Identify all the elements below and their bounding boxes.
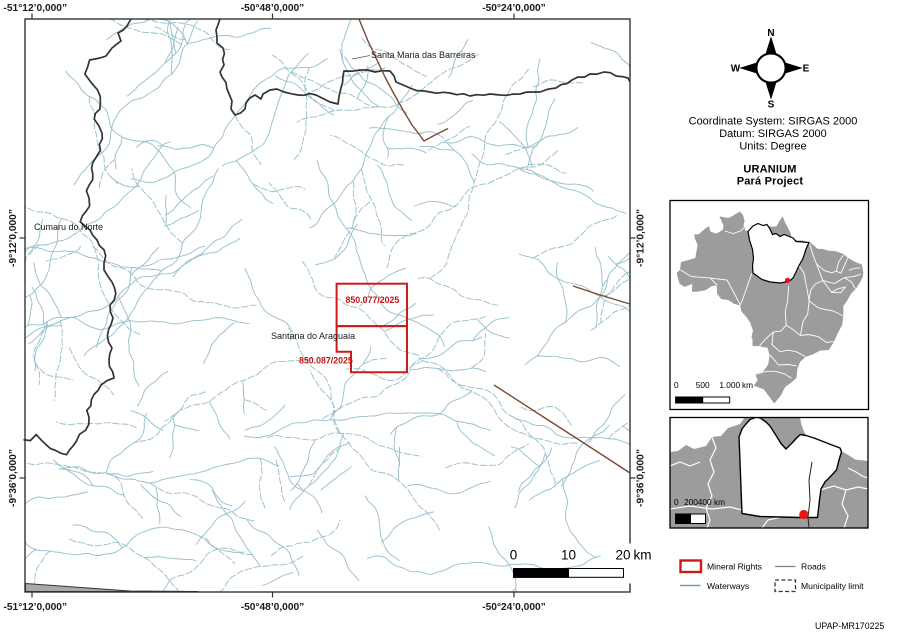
svg-text:km: km: [714, 497, 725, 507]
svg-text:N: N: [767, 28, 774, 39]
svg-text:-50°48’0,000”: -50°48’0,000”: [241, 602, 305, 613]
svg-text:Coordinate System: SIRGAS 2000: Coordinate System: SIRGAS 2000: [689, 116, 858, 128]
svg-text:E: E: [803, 64, 810, 75]
svg-text:1.000: 1.000: [719, 380, 740, 390]
svg-text:S: S: [768, 100, 775, 111]
svg-text:0: 0: [674, 380, 679, 390]
svg-text:UPAP-MR170225: UPAP-MR170225: [815, 621, 884, 631]
svg-text:Cumaru do Norte: Cumaru do Norte: [34, 222, 103, 232]
svg-text:Roads: Roads: [801, 562, 826, 572]
svg-text:-51°12’0,000”: -51°12’0,000”: [4, 602, 68, 613]
svg-text:Pará Project: Pará Project: [737, 176, 804, 188]
svg-text:-51°12’0,000”: -51°12’0,000”: [4, 3, 68, 14]
svg-text:Santa Maria das Barreiras: Santa Maria das Barreiras: [371, 50, 476, 60]
svg-text:400: 400: [698, 497, 712, 507]
svg-text:850.087/2025: 850.087/2025: [299, 356, 353, 366]
svg-text:-9°36’0,000”: -9°36’0,000”: [8, 449, 19, 507]
svg-text:km: km: [742, 380, 753, 390]
svg-text:-9°36’0,000”: -9°36’0,000”: [636, 449, 647, 507]
svg-text:10: 10: [561, 548, 576, 563]
svg-text:Municipality limit: Municipality limit: [801, 581, 864, 591]
svg-text:500: 500: [696, 380, 710, 390]
svg-text:Units: Degree: Units: Degree: [739, 141, 806, 153]
svg-text:-9°12’0,000”: -9°12’0,000”: [636, 209, 647, 267]
svg-text:URANIUM: URANIUM: [743, 164, 796, 176]
svg-text:Waterways: Waterways: [707, 581, 749, 591]
svg-text:-50°24’0,000”: -50°24’0,000”: [482, 602, 546, 613]
svg-text:-9°12’0,000”: -9°12’0,000”: [8, 209, 19, 267]
svg-text:-50°24’0,000”: -50°24’0,000”: [482, 3, 546, 14]
svg-text:-50°48’0,000”: -50°48’0,000”: [241, 3, 305, 14]
svg-text:km: km: [634, 548, 652, 563]
svg-text:0: 0: [510, 548, 518, 563]
svg-text:Datum: SIRGAS 2000: Datum: SIRGAS 2000: [719, 128, 827, 140]
svg-text:20: 20: [615, 548, 630, 563]
svg-text:Santana do Araguaia: Santana do Araguaia: [271, 331, 355, 341]
svg-text:200: 200: [684, 497, 698, 507]
svg-text:0: 0: [674, 497, 679, 507]
svg-text:Mineral Rights: Mineral Rights: [707, 562, 762, 572]
svg-text:850.077/2025: 850.077/2025: [346, 295, 400, 305]
svg-text:W: W: [731, 64, 741, 75]
